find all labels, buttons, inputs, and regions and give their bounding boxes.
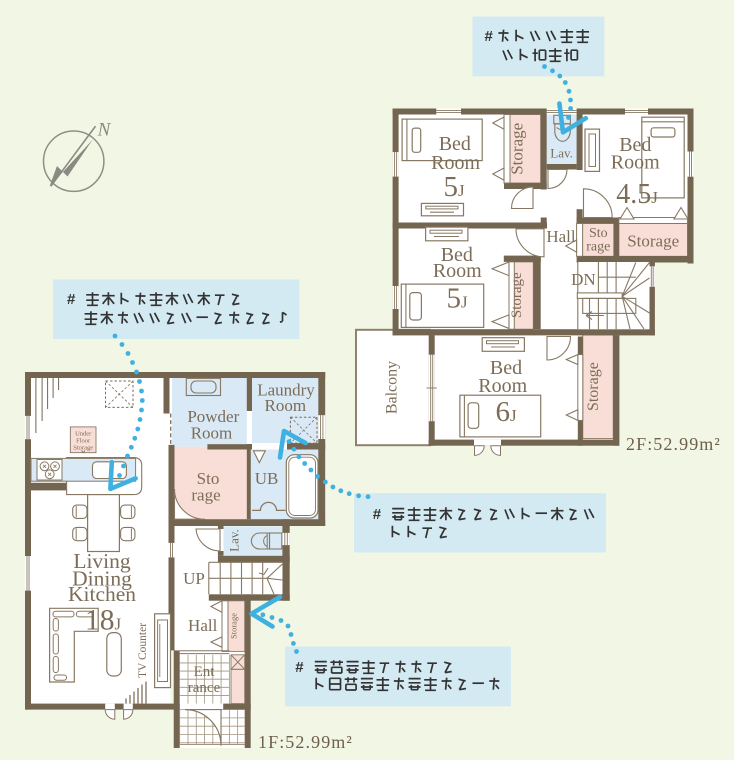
svg-text:Room: Room — [478, 375, 527, 397]
svg-text:Storage: Storage — [228, 613, 238, 639]
svg-text:Storage: Storage — [509, 272, 525, 318]
svg-text:#: # — [67, 291, 76, 308]
svg-text:Room: Room — [191, 424, 233, 443]
svg-text:Storage: Storage — [73, 445, 93, 452]
svg-text:Under: Under — [75, 431, 92, 438]
svg-text:Balcony: Balcony — [384, 361, 401, 414]
svg-text:N: N — [97, 120, 112, 141]
svg-text:Lav.: Lav. — [227, 529, 242, 552]
svg-text:#: # — [295, 659, 304, 676]
svg-text:Hall: Hall — [188, 616, 218, 635]
svg-text:Room: Room — [433, 260, 482, 282]
svg-text:#: # — [485, 28, 494, 45]
svg-text:Kitchen: Kitchen — [68, 582, 136, 606]
svg-text:TV Counter: TV Counter — [137, 623, 149, 678]
svg-text:DN: DN — [571, 270, 596, 289]
svg-text:Room: Room — [611, 152, 660, 174]
svg-text:Hall: Hall — [546, 227, 576, 246]
svg-text:Storage: Storage — [507, 123, 526, 175]
svg-text:Storage: Storage — [627, 232, 679, 251]
svg-text:Room: Room — [265, 396, 307, 415]
svg-text:Storage: Storage — [585, 362, 602, 411]
svg-text:#: # — [373, 506, 382, 523]
svg-text:1F:52.99m²: 1F:52.99m² — [258, 732, 353, 752]
svg-text:Floor: Floor — [76, 438, 91, 445]
svg-text:UP: UP — [183, 569, 205, 588]
svg-text:UB: UB — [255, 469, 279, 488]
svg-text:2F:52.99m²: 2F:52.99m² — [626, 434, 721, 454]
svg-text:rage: rage — [586, 240, 610, 255]
svg-text:Ent: Ent — [194, 664, 216, 680]
svg-text:Lav.: Lav. — [550, 146, 573, 161]
svg-text:rage: rage — [191, 486, 220, 505]
svg-text:rance: rance — [188, 680, 221, 696]
